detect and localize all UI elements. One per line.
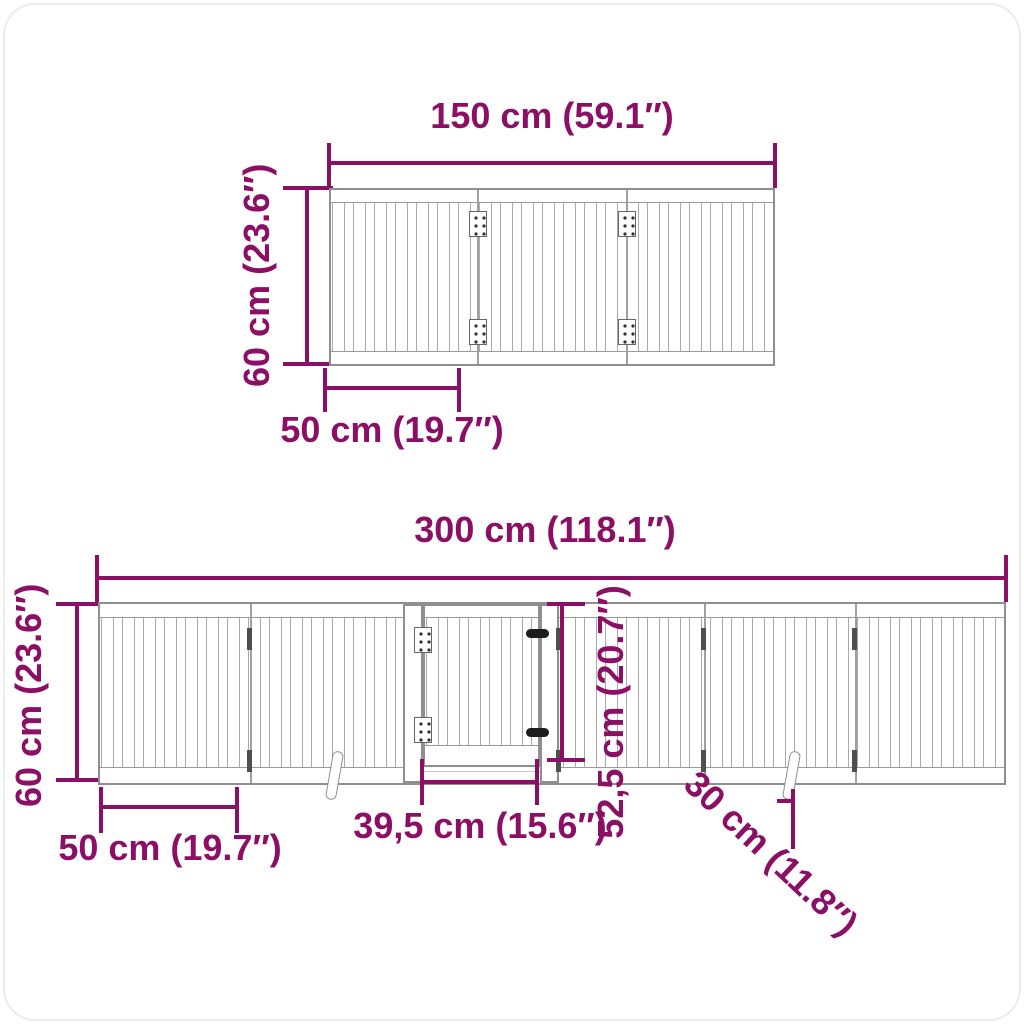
bottom-view-width-label: 300 cm (118.1″) — [345, 510, 745, 550]
top-width-left-tick — [327, 143, 331, 188]
hinge-pin-icon — [701, 628, 706, 650]
top-height-top-tick — [283, 186, 333, 190]
top-panel-dimension-line — [323, 386, 461, 390]
foot-leader-tick — [777, 799, 795, 803]
door-top-rail — [425, 606, 538, 618]
door-height-label: 52,5 cm (20.7″) — [591, 582, 631, 842]
top-panel-left-tick — [323, 368, 327, 412]
door-height-dimension-line — [560, 602, 564, 762]
door-leaf — [423, 604, 540, 767]
bottom-height-top-tick — [56, 602, 100, 606]
gate-slats — [332, 203, 772, 351]
bottom-width-dimension-line — [95, 576, 1008, 580]
hinge-icon — [414, 627, 432, 653]
hinge-icon — [469, 211, 487, 237]
gate-top-view-drawing — [329, 188, 775, 366]
door-threshold-line — [423, 771, 540, 772]
door-width-label: 39,5 cm (15.6″) — [330, 806, 630, 846]
gate-bottom-rail — [331, 351, 773, 364]
top-view-panel-width-label: 50 cm (19.7″) — [242, 410, 542, 450]
bottom-height-dimension-line — [75, 604, 79, 780]
bottom-height-bottom-tick — [56, 778, 100, 782]
hinge-icon — [618, 211, 636, 237]
door-height-top-tick — [547, 602, 585, 606]
support-foot-length-label: 30 cm (11.8″) — [676, 763, 865, 943]
top-height-dimension-line — [305, 188, 309, 366]
bottom-width-right-tick — [1004, 555, 1008, 602]
hinge-icon — [469, 319, 487, 345]
hinge-pin-icon — [247, 750, 252, 772]
latch-icon — [526, 629, 549, 638]
door-panel — [403, 604, 559, 783]
hinge-icon — [414, 717, 432, 743]
top-width-dimension-line — [329, 161, 775, 165]
foot-leader-line — [791, 789, 795, 849]
top-view-width-label: 150 cm (59.1″) — [352, 96, 752, 136]
hinge-pin-icon — [247, 628, 252, 650]
door-bottom-rail — [425, 745, 538, 765]
top-view-height-label: 60 cm (23.6″) — [237, 167, 277, 387]
hinge-pin-icon — [852, 628, 857, 650]
bottom-width-left-tick — [95, 555, 99, 602]
latch-icon — [526, 728, 549, 737]
hinge-icon — [618, 319, 636, 345]
bottom-view-panel-width-label: 50 cm (19.7″) — [20, 828, 320, 868]
top-width-right-tick — [773, 143, 777, 188]
door-height-bottom-tick — [547, 758, 585, 762]
top-panel-right-tick — [457, 368, 461, 412]
door-width-dimension-line — [420, 780, 539, 784]
top-height-bottom-tick — [283, 362, 333, 366]
gate-top-rail — [331, 190, 773, 203]
bottom-view-height-label: 60 cm (23.6″) — [9, 587, 49, 807]
hinge-pin-icon — [852, 750, 857, 772]
bottom-panel-dimension-line — [99, 805, 239, 809]
door-slats — [426, 618, 537, 745]
